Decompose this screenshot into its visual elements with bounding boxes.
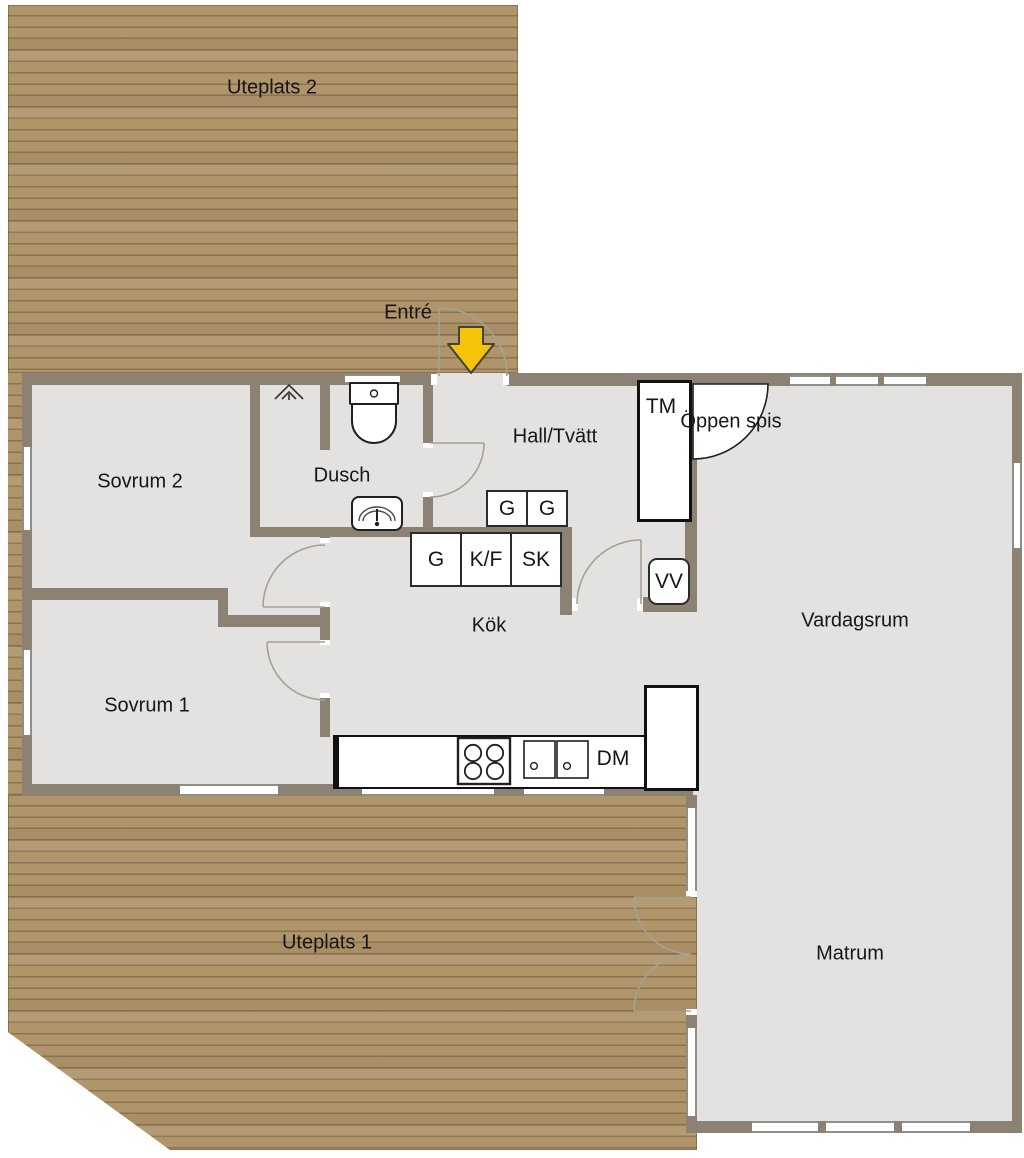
wardrobe-cabinet: G xyxy=(526,490,568,527)
window-matrum-bottom-3 xyxy=(902,1121,970,1133)
window-sovrum1-left xyxy=(22,650,32,735)
room-label-dusch: Dusch xyxy=(314,465,371,488)
window-top-right-3 xyxy=(884,375,926,386)
jamb-matrum-top xyxy=(686,891,697,897)
tall-kitchen-cabinet xyxy=(644,685,699,791)
left-deck-strip xyxy=(8,373,22,795)
jamb-hall-right xyxy=(637,598,643,611)
uteplats-2-deck xyxy=(8,5,518,373)
window-vardagsrum-right xyxy=(1012,463,1022,548)
room-label-kok: Kök xyxy=(472,615,506,638)
room-label-matrum: Matrum xyxy=(816,943,884,966)
wardrobe-cabinet: G xyxy=(486,490,528,527)
uteplats-1-deck xyxy=(8,795,697,1150)
jamb-sovrum1-top xyxy=(320,640,330,645)
window-matrum-bottom-1 xyxy=(752,1121,818,1133)
washing-machine-label: TM xyxy=(646,395,676,419)
wall-bedroom-divider-a xyxy=(22,588,228,600)
water-heater-unit: VV xyxy=(648,558,690,605)
jamb-dusch-top xyxy=(423,443,433,448)
hall-wardrobes: G G xyxy=(486,490,568,527)
floor-livingroom-block xyxy=(686,376,1022,1133)
entrance-label: Entré xyxy=(384,302,432,325)
wall-top-right xyxy=(507,373,1022,386)
wall-sovrum2-right xyxy=(250,373,260,537)
wall-toilet-left xyxy=(320,373,330,450)
room-label-sovrum1: Sovrum 1 xyxy=(104,695,190,718)
fridge-freezer-cabinet: K/F xyxy=(460,532,512,587)
cleaning-closet-cabinet: SK xyxy=(510,532,562,587)
deck-label-uteplats2: Uteplats 2 xyxy=(227,77,317,100)
jamb-entrance-right xyxy=(503,374,509,385)
window-matrum-bottom-2 xyxy=(826,1121,894,1133)
window-dusch-top xyxy=(345,374,400,384)
wall-corridor-bottom xyxy=(320,698,330,737)
fireplace-label: Öppen spis xyxy=(680,411,781,434)
window-matrum-left-1 xyxy=(686,808,697,892)
jamb-sovrum2-bottom xyxy=(320,602,330,607)
jamb-sovrum1-bottom xyxy=(320,693,330,698)
window-sovrum2-left xyxy=(22,447,32,530)
window-bottom-1 xyxy=(180,784,278,796)
floor-plan: G G G K/F SK VV xyxy=(0,0,1024,1158)
kitchen-cabinet-row: G K/F SK xyxy=(410,532,562,587)
wardrobe-cabinet: G xyxy=(410,532,462,587)
jamb-entrance-left xyxy=(431,374,437,385)
deck-label-uteplats1: Uteplats 1 xyxy=(282,932,372,955)
jamb-hall-left xyxy=(572,598,578,611)
dishwasher-label: DM xyxy=(597,747,630,771)
wall-bedroom-divider-b xyxy=(218,615,330,627)
window-top-right-1 xyxy=(790,375,830,386)
room-label-vardagsrum: Vardagsrum xyxy=(801,610,908,633)
room-label-hall: Hall/Tvätt xyxy=(513,426,597,449)
window-top-right-2 xyxy=(836,375,878,386)
jamb-matrum-bottom xyxy=(686,1009,697,1015)
jamb-sovrum2-top xyxy=(320,538,330,543)
jamb-dusch-bottom xyxy=(423,492,433,497)
window-matrum-left-2 xyxy=(686,1028,697,1116)
room-label-sovrum2: Sovrum 2 xyxy=(97,471,183,494)
